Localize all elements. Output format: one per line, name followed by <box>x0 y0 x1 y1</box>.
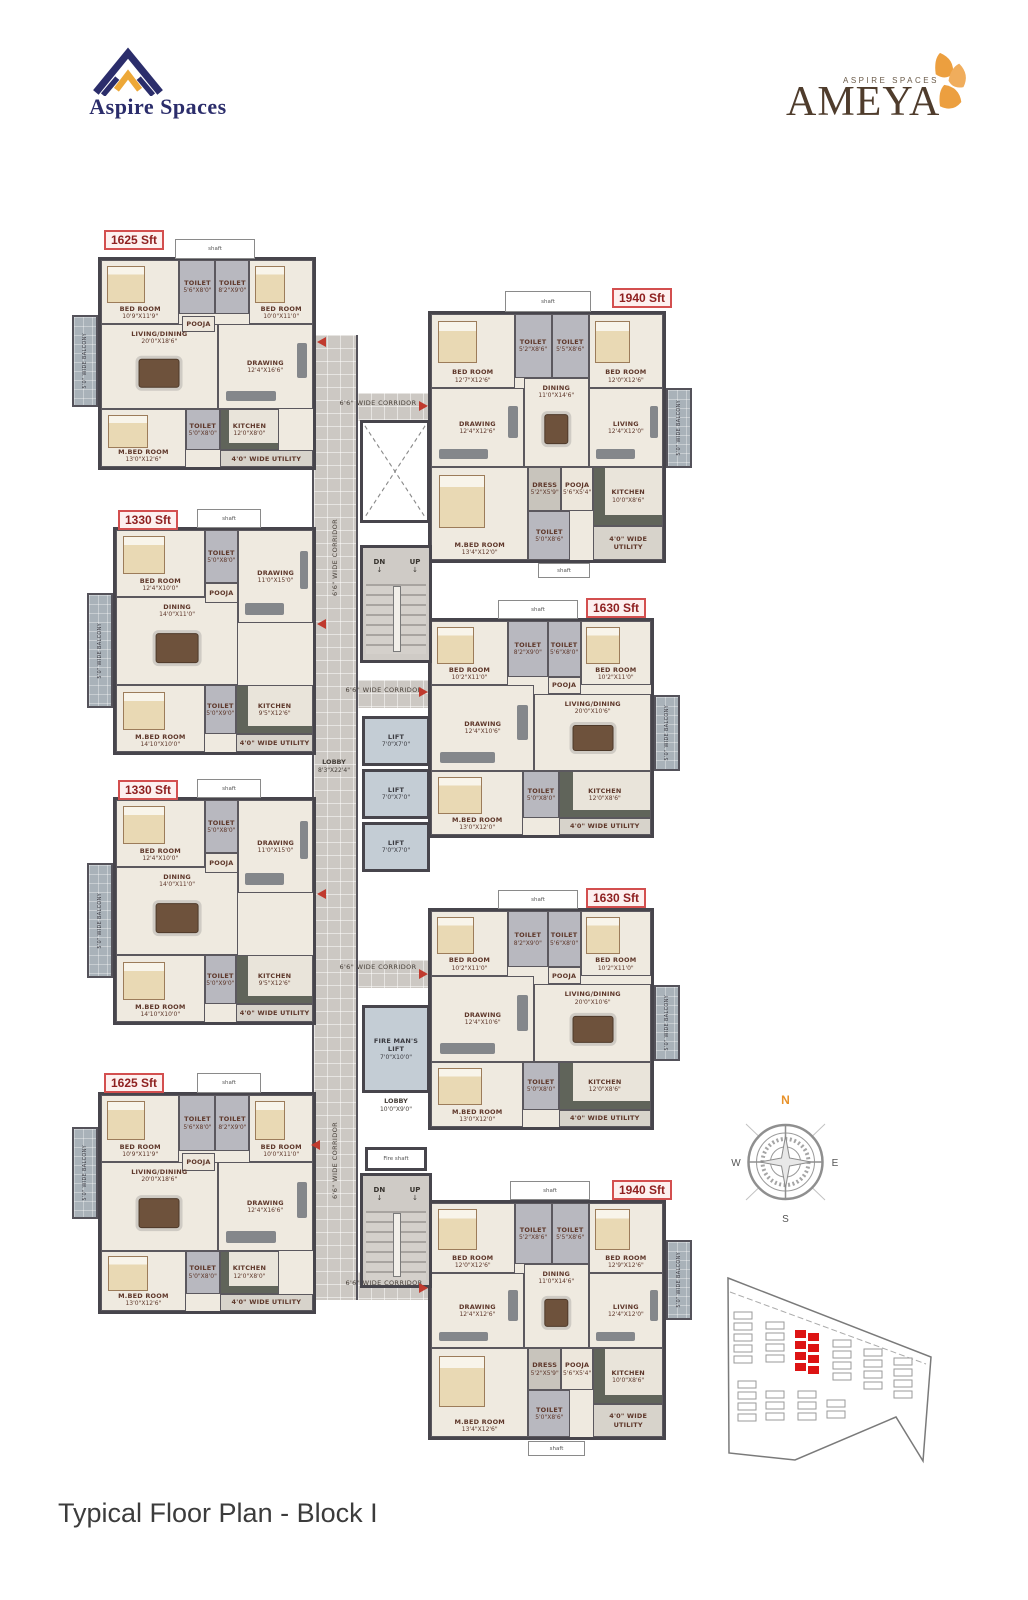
room-label: TOILET <box>536 528 563 536</box>
bed-icon <box>439 475 485 528</box>
bed-icon <box>108 415 148 448</box>
entry-marker-icon <box>317 619 326 629</box>
room-dims: 12'4"X10'0" <box>142 855 178 862</box>
compass-icon: N W E S <box>728 1086 843 1226</box>
room-dims: 12'7"X12'6" <box>455 377 491 384</box>
room-label: DINING <box>542 1270 570 1278</box>
room-dims: 12'0"X8'0" <box>233 1273 265 1280</box>
stairs-up-label: UP <box>410 558 421 574</box>
room-dims: 10'2"X11'0" <box>598 674 634 681</box>
balcony-label: 5'0" WIDE BALCONY <box>82 1145 88 1201</box>
room-label: DINING <box>542 384 570 392</box>
room-4-0-wide-utility: 4'0" WIDE UTILITY <box>236 734 313 752</box>
room-label: KITCHEN <box>588 787 621 795</box>
room-dims: 5'0"X8'6" <box>535 536 563 543</box>
room-dims: 12'4"X12'0" <box>608 1311 644 1318</box>
room-drawing: DRAWING12'4"X16'6" <box>218 324 313 409</box>
lift-1: LIFT 7'0"X7'0" <box>362 716 430 766</box>
area-label-1330-2: 1330 Sft <box>118 780 178 800</box>
shaft-box: shaft <box>197 509 261 528</box>
room-dims: 10'9"X11'9" <box>122 313 158 320</box>
room-label: M.BED ROOM <box>135 733 186 741</box>
room-dims: 12'4"X12'6" <box>459 1311 495 1318</box>
room-label: 4'0" WIDE UTILITY <box>570 1114 640 1122</box>
entry-marker-icon <box>419 401 428 411</box>
dining-table-icon <box>156 633 199 663</box>
entry-marker-icon <box>419 687 428 697</box>
unit-1940-2: BED ROOM12'0"X12'6"TOILET5'2"X8'6"TOILET… <box>428 1200 666 1440</box>
corridor-label: 6'6" WIDE CORRIDOR <box>331 500 339 615</box>
room-toilet: TOILET5'0"X8'0" <box>186 409 220 450</box>
corridor-label: 6'6" WIDE CORRIDOR <box>328 399 428 407</box>
room-bed-room: BED ROOM10'0"X11'0" <box>249 1095 313 1162</box>
room-toilet: TOILET5'0"X8'0" <box>523 771 558 818</box>
room-label: TOILET <box>219 1115 246 1123</box>
bed-icon <box>123 692 165 730</box>
room-dims: 5'6"X5'4" <box>563 489 591 496</box>
dining-table-icon <box>156 903 199 933</box>
area-label-1625-1: 1625 Sft <box>104 230 164 250</box>
room-bed-room: BED ROOM10'2"X11'0" <box>431 621 508 685</box>
room-label: POOJA <box>552 681 576 689</box>
bed-icon <box>438 777 482 814</box>
room-dims: 5'0"X8'0" <box>207 827 235 834</box>
bed-icon <box>438 1209 477 1249</box>
room-dims: 11'0"X15'0" <box>258 577 294 584</box>
room-dims: 20'0"X18'6" <box>141 338 177 345</box>
room-dress: DRESS5'2"X5'9" <box>528 467 560 511</box>
lobby2-name: LOBBY <box>360 1097 432 1106</box>
room-toilet: TOILET5'2"X8'6" <box>515 314 552 378</box>
balcony: 5'0" WIDE BALCONY <box>87 593 113 708</box>
room-bed-room: BED ROOM12'0"X12'6" <box>431 1203 515 1273</box>
room-label: TOILET <box>207 972 234 980</box>
room-label: POOJA <box>565 481 589 489</box>
bed-icon <box>108 1256 148 1291</box>
room-dims: 11'0"X14'6" <box>538 1278 574 1285</box>
room-4-0-wide-utility: 4'0" WIDE UTILITY <box>559 1110 651 1127</box>
room-living: LIVING12'4"X12'0" <box>589 388 663 467</box>
bed-icon <box>123 536 165 574</box>
sofa-icon <box>596 1332 635 1341</box>
dining-table-icon <box>545 414 568 444</box>
room-dims: 14'0"X11'0" <box>159 881 195 888</box>
shaft-box: shaft <box>510 1181 590 1200</box>
room-label: KITCHEN <box>233 422 266 430</box>
sofa-icon <box>439 1332 488 1341</box>
room-label: KITCHEN <box>233 1264 266 1272</box>
bed-icon <box>107 266 144 303</box>
stair-divider <box>393 1213 402 1277</box>
compass-east: E <box>832 1158 839 1169</box>
room-label: TOILET <box>514 641 541 649</box>
room-dims: 12'4"X12'6" <box>459 428 495 435</box>
room-dims: 5'2"X8'6" <box>519 1234 547 1241</box>
room-dims: 14'10"X10'0" <box>140 741 180 748</box>
room-dims: 5'0"X8'0" <box>189 1273 217 1280</box>
room-label: POOJA <box>209 589 233 597</box>
lobby-name: LOBBY <box>310 758 358 767</box>
room-dims: 12'0"X8'0" <box>233 430 265 437</box>
area-label-1330-1: 1330 Sft <box>118 510 178 530</box>
balcony: 5'0" WIDE BALCONY <box>72 1127 98 1219</box>
room-bed-room: BED ROOM10'2"X11'0" <box>581 911 651 976</box>
bed-icon <box>123 962 165 1000</box>
lift-dims: 7'0"X7'0" <box>382 741 410 748</box>
room-dims: 9'5"X12'6" <box>259 980 291 987</box>
aspire-spaces-logo-icon <box>80 46 176 96</box>
room-label: LIVING/DINING <box>565 990 621 998</box>
room-dims: 10'2"X11'0" <box>452 674 488 681</box>
sofa-icon <box>650 406 658 438</box>
room-label: BED ROOM <box>140 847 181 855</box>
room-toilet: TOILET8'2"X9'0" <box>215 260 249 314</box>
fire-lift-label: FIRE MAN'S LIFT <box>365 1037 427 1053</box>
room-dims: 5'2"X8'6" <box>519 346 547 353</box>
area-label-1630-1: 1630 Sft <box>586 598 646 618</box>
room-m-bed-room: M.BED ROOM13'0"X12'0" <box>431 1062 523 1127</box>
lift-label: LIFT <box>388 733 404 741</box>
room-label: M.BED ROOM <box>118 448 169 456</box>
lobby2-label: LOBBY 10'0"X9'0" <box>360 1097 432 1113</box>
room-dims: 10'2"X11'0" <box>452 965 488 972</box>
room-drawing: DRAWING11'0"X15'0" <box>238 530 313 623</box>
room-label: LIVING <box>613 420 639 428</box>
sofa-icon <box>508 1290 518 1321</box>
balcony: 5'0" WIDE BALCONY <box>666 1240 692 1320</box>
room-label: M.BED ROOM <box>454 541 505 549</box>
room-dims: 10'0"X8'6" <box>612 497 644 504</box>
room-dims: 10'2"X11'0" <box>598 965 634 972</box>
room-dining: DINING14'0"X11'0" <box>116 867 238 956</box>
room-label: BED ROOM <box>605 1254 646 1262</box>
room-label: POOJA <box>552 972 576 980</box>
open-shaft <box>360 420 430 523</box>
room-label: TOILET <box>557 1226 584 1234</box>
balcony-label: 5'0" WIDE BALCONY <box>664 705 670 761</box>
room-kitchen: KITCHEN9'5"X12'6" <box>236 955 313 1004</box>
room-kitchen: KITCHEN12'0"X8'0" <box>220 1251 279 1294</box>
room-dims: 5'5"X8'6" <box>556 346 584 353</box>
room-dims: 5'0"X8'0" <box>527 795 555 802</box>
room-4-0-wide-utility: 4'0" WIDE UTILITY <box>559 818 651 835</box>
unit-1630-2: BED ROOM10'2"X11'0"TOILET8'2"X9'0"TOILET… <box>428 908 654 1130</box>
stairs-up-label: UP <box>410 1186 421 1202</box>
entry-marker-icon <box>311 1140 320 1150</box>
room-label: KITCHEN <box>258 972 291 980</box>
room-bed-room: BED ROOM12'0"X12'6" <box>589 314 663 388</box>
room-toilet: TOILET5'5"X8'6" <box>552 314 589 378</box>
room-kitchen: KITCHEN10'0"X8'6" <box>593 1348 663 1404</box>
room-dims: 13'0"X12'0" <box>459 1116 495 1123</box>
room-dims: 12'4"X12'0" <box>608 428 644 435</box>
page-title: Typical Floor Plan - Block I <box>58 1498 378 1529</box>
room-toilet: TOILET5'0"X8'0" <box>523 1062 558 1110</box>
room-toilet: TOILET5'0"X9'0" <box>205 685 237 734</box>
room-label: DRAWING <box>464 720 501 728</box>
room-label: TOILET <box>189 1264 216 1272</box>
unit-1330-1: BED ROOM12'4"X10'0"TOILET5'0"X8'0"POOJAD… <box>113 527 316 755</box>
shaft-box: shaft <box>498 890 578 909</box>
entry-marker-icon <box>419 1283 428 1293</box>
room-pooja: POOJA <box>548 967 581 984</box>
area-label-1630-2: 1630 Sft <box>586 888 646 908</box>
room-pooja: POOJA <box>205 583 238 603</box>
room-toilet: TOILET8'2"X9'0" <box>508 911 548 967</box>
room-toilet: TOILET8'2"X9'0" <box>508 621 548 677</box>
corridor-label: 6'6" WIDE CORRIDOR <box>331 1103 339 1218</box>
room-label: M.BED ROOM <box>135 1003 186 1011</box>
room-dims: 5'6"X8'0" <box>550 940 578 947</box>
room-dims: 12'4"X10'6" <box>465 1019 501 1026</box>
lift-dims: 7'0"X7'0" <box>382 847 410 854</box>
staircase-bottom: DN UP <box>360 1173 432 1288</box>
room-label: M.BED ROOM <box>454 1418 505 1426</box>
room-label: DRAWING <box>247 359 284 367</box>
bed-icon <box>437 627 474 664</box>
room-label: DRAWING <box>459 420 496 428</box>
room-toilet: TOILET5'6"X8'0" <box>179 260 215 314</box>
room-label: TOILET <box>528 787 555 795</box>
unit-1625-1: BED ROOM10'9"X11'9"TOILET5'6"X8'0"TOILET… <box>98 257 316 470</box>
dining-table-icon <box>572 725 613 751</box>
room-label: BED ROOM <box>261 1143 302 1151</box>
dining-table-icon <box>139 1198 180 1228</box>
room-dims: 20'0"X10'6" <box>575 708 611 715</box>
room-living-dining: LIVING/DINING20'0"X18'6" <box>101 324 218 409</box>
room-kitchen: KITCHEN12'0"X8'6" <box>559 771 651 818</box>
room-dims: 12'4"X16'6" <box>247 367 283 374</box>
sofa-icon <box>650 1290 658 1321</box>
room-kitchen: KITCHEN10'0"X8'6" <box>593 467 663 526</box>
room-dims: 20'0"X10'6" <box>575 999 611 1006</box>
room-bed-room: BED ROOM10'9"X11'9" <box>101 260 179 324</box>
room-label: LIVING/DINING <box>565 700 621 708</box>
compass-west: W <box>731 1158 741 1169</box>
room-label: DRAWING <box>459 1303 496 1311</box>
room-label: BED ROOM <box>140 577 181 585</box>
room-dress: DRESS5'2"X5'9" <box>528 1348 560 1390</box>
room-dining: DINING14'0"X11'0" <box>116 597 238 686</box>
room-dims: 13'4"X12'0" <box>462 549 498 556</box>
entry-marker-icon <box>317 337 326 347</box>
room-kitchen: KITCHEN9'5"X12'6" <box>236 685 313 734</box>
room-label: BED ROOM <box>449 666 490 674</box>
sofa-icon <box>440 752 495 763</box>
sofa-icon <box>245 603 284 615</box>
room-dims: 5'0"X9'0" <box>206 710 234 717</box>
sofa-icon <box>517 995 528 1030</box>
room-4-0-wide-utility: 4'0" WIDE UTILITY <box>220 1294 313 1311</box>
room-label: BED ROOM <box>595 666 636 674</box>
room-label: DINING <box>163 603 191 611</box>
room-label: TOILET <box>208 819 235 827</box>
room-dims: 5'6"X8'0" <box>183 287 211 294</box>
room-label: TOILET <box>551 931 578 939</box>
room-label: 4'0" WIDE UTILITY <box>594 1412 662 1428</box>
room-dims: 13'0"X12'0" <box>459 824 495 831</box>
sofa-icon <box>300 821 308 859</box>
room-drawing: DRAWING12'4"X12'6" <box>431 1273 524 1348</box>
room-dims: 5'2"X5'9" <box>531 1370 559 1377</box>
room-label: TOILET <box>528 1078 555 1086</box>
room-bed-room: BED ROOM12'9"X12'6" <box>589 1203 663 1273</box>
room-label: POOJA <box>186 1158 210 1166</box>
sofa-icon <box>439 449 488 459</box>
room-living-dining: LIVING/DINING20'0"X10'6" <box>534 984 651 1062</box>
room-m-bed-room: M.BED ROOM14'10"X10'0" <box>116 955 205 1022</box>
room-drawing: DRAWING11'0"X15'0" <box>238 800 313 893</box>
room-label: M.BED ROOM <box>452 1108 503 1116</box>
lift-label: LIFT <box>388 786 404 794</box>
room-label: TOILET <box>551 641 578 649</box>
room-label: POOJA <box>186 320 210 328</box>
room-label: BED ROOM <box>595 956 636 964</box>
room-label: TOILET <box>520 338 547 346</box>
shaft-box: shaft <box>528 1441 585 1456</box>
room-label: TOILET <box>184 1115 211 1123</box>
brand-ameya: ASPIRE SPACES AMEYA <box>780 48 1000 138</box>
sofa-icon <box>245 873 284 885</box>
room-label: BED ROOM <box>452 1254 493 1262</box>
balcony-label: 5'0" WIDE BALCONY <box>664 995 670 1051</box>
room-label: DRAWING <box>464 1011 501 1019</box>
bed-icon <box>255 1101 285 1139</box>
balcony: 5'0" WIDE BALCONY <box>666 388 692 468</box>
room-bed-room: BED ROOM10'9"X11'9" <box>101 1095 179 1162</box>
sofa-icon <box>508 406 518 438</box>
room-label: TOILET <box>189 422 216 430</box>
sofa-icon <box>297 1182 307 1218</box>
dining-table-icon <box>139 359 180 388</box>
room-label: 4'0" WIDE UTILITY <box>240 1009 310 1017</box>
room-dims: 5'0"X9'0" <box>206 980 234 987</box>
staircase-top: DN UP <box>360 545 432 663</box>
room-label: KITCHEN <box>611 488 644 496</box>
stairs-down-label: DN <box>374 1186 386 1202</box>
room-toilet: TOILET5'2"X8'6" <box>515 1203 552 1264</box>
room-living-dining: LIVING/DINING20'0"X10'6" <box>534 694 651 771</box>
sofa-icon <box>517 705 528 740</box>
lift-2: LIFT 7'0"X7'0" <box>362 769 430 819</box>
room-dims: 20'0"X18'6" <box>141 1176 177 1183</box>
room-dims: 13'4"X12'6" <box>462 1426 498 1433</box>
fire-lift-dims: 7'0"X10'0" <box>380 1054 412 1061</box>
room-drawing: DRAWING12'4"X16'6" <box>218 1162 313 1251</box>
bed-icon <box>586 627 619 664</box>
room-drawing: DRAWING12'4"X12'6" <box>431 388 524 467</box>
room-pooja: POOJA5'6"X5'4" <box>561 467 593 511</box>
room-dims: 8'2"X9'0" <box>218 1124 246 1131</box>
room-m-bed-room: M.BED ROOM13'4"X12'0" <box>431 467 528 560</box>
room-dims: 13'0"X12'6" <box>125 456 161 463</box>
sofa-icon <box>300 551 308 589</box>
room-dims: 5'0"X8'0" <box>189 430 217 437</box>
stairs-down-label: DN <box>374 558 386 574</box>
room-dims: 9'5"X12'6" <box>259 710 291 717</box>
room-dims: 5'0"X8'0" <box>527 1086 555 1093</box>
room-label: POOJA <box>209 859 233 867</box>
room-toilet: TOILET5'5"X8'6" <box>552 1203 589 1264</box>
room-label: TOILET <box>536 1406 563 1414</box>
shaft-box: shaft <box>498 600 578 619</box>
shaft-box: shaft <box>197 1073 261 1093</box>
fire-shaft-label: Fire shaft <box>383 1156 408 1162</box>
balcony: 5'0" WIDE BALCONY <box>87 863 113 978</box>
room-bed-room: BED ROOM12'4"X10'0" <box>116 530 205 597</box>
balcony: 5'0" WIDE BALCONY <box>654 695 680 771</box>
room-dims: 12'0"X12'6" <box>608 377 644 384</box>
room-drawing: DRAWING12'4"X10'6" <box>431 685 534 771</box>
room-living-dining: LIVING/DINING20'0"X18'6" <box>101 1162 218 1251</box>
room-label: BED ROOM <box>261 305 302 313</box>
shaft-cross-icon <box>363 423 427 520</box>
stair-divider <box>393 586 402 652</box>
room-dims: 12'4"X10'6" <box>465 728 501 735</box>
brand-aspire-spaces: Aspire Spaces <box>58 46 258 126</box>
room-toilet: TOILET5'6"X8'0" <box>548 911 581 967</box>
room-pooja: POOJA <box>548 677 581 694</box>
room-4-0-wide-utility: 4'0" WIDE UTILITY <box>593 1404 663 1437</box>
room-dims: 8'2"X9'0" <box>514 940 542 947</box>
unit-1940-1: BED ROOM12'7"X12'6"TOILET5'2"X8'6"TOILET… <box>428 311 666 563</box>
room-dims: 12'4"X16'6" <box>247 1207 283 1214</box>
room-toilet: TOILET5'0"X8'0" <box>186 1251 220 1294</box>
entry-marker-icon <box>419 969 428 979</box>
room-label: M.BED ROOM <box>452 816 503 824</box>
room-label: DRAWING <box>257 839 294 847</box>
room-m-bed-room: M.BED ROOM13'0"X12'6" <box>101 409 186 467</box>
room-dims: 5'0"X8'6" <box>535 1414 563 1421</box>
room-bed-room: BED ROOM10'2"X11'0" <box>431 911 508 976</box>
room-dims: 12'0"X12'6" <box>455 1262 491 1269</box>
room-label: BED ROOM <box>605 368 646 376</box>
balcony-label: 5'0" WIDE BALCONY <box>676 1252 682 1308</box>
room-dims: 8'2"X9'0" <box>514 649 542 656</box>
room-toilet: TOILET5'0"X8'0" <box>205 530 238 583</box>
room-label: DRESS <box>532 481 557 489</box>
room-dims: 12'9"X12'6" <box>608 1262 644 1269</box>
room-dims: 11'0"X15'0" <box>258 847 294 854</box>
room-label: 4'0" WIDE UTILITY <box>232 1298 302 1306</box>
balcony-label: 5'0" WIDE BALCONY <box>97 623 103 679</box>
room-label: TOILET <box>184 279 211 287</box>
room-label: DRAWING <box>247 1199 284 1207</box>
room-label: 4'0" WIDE UTILITY <box>240 739 310 747</box>
room-label: TOILET <box>520 1226 547 1234</box>
room-toilet: TOILET5'0"X8'6" <box>528 1390 570 1437</box>
room-label: TOILET <box>219 279 246 287</box>
room-label: DINING <box>163 873 191 881</box>
room-bed-room: BED ROOM12'7"X12'6" <box>431 314 515 388</box>
site-key-map <box>700 1248 938 1470</box>
shaft-box: shaft <box>197 779 261 798</box>
balcony: 5'0" WIDE BALCONY <box>72 315 98 407</box>
room-dims: 14'0"X11'0" <box>159 611 195 618</box>
brand-left-name: Aspire Spaces <box>58 94 258 120</box>
room-toilet: TOILET5'6"X8'0" <box>548 621 581 677</box>
room-pooja: POOJA5'6"X5'4" <box>561 1348 593 1390</box>
room-label: 4'0" WIDE UTILITY <box>232 455 302 463</box>
bed-icon <box>437 917 474 954</box>
room-label: TOILET <box>208 549 235 557</box>
dining-table-icon <box>572 1016 613 1042</box>
shaft-box: shaft <box>505 291 591 312</box>
room-dining: DINING11'0"X14'6" <box>524 1264 589 1348</box>
bed-icon <box>107 1101 144 1139</box>
fire-shaft: Fire shaft <box>365 1147 427 1171</box>
room-dims: 12'0"X8'6" <box>589 795 621 802</box>
